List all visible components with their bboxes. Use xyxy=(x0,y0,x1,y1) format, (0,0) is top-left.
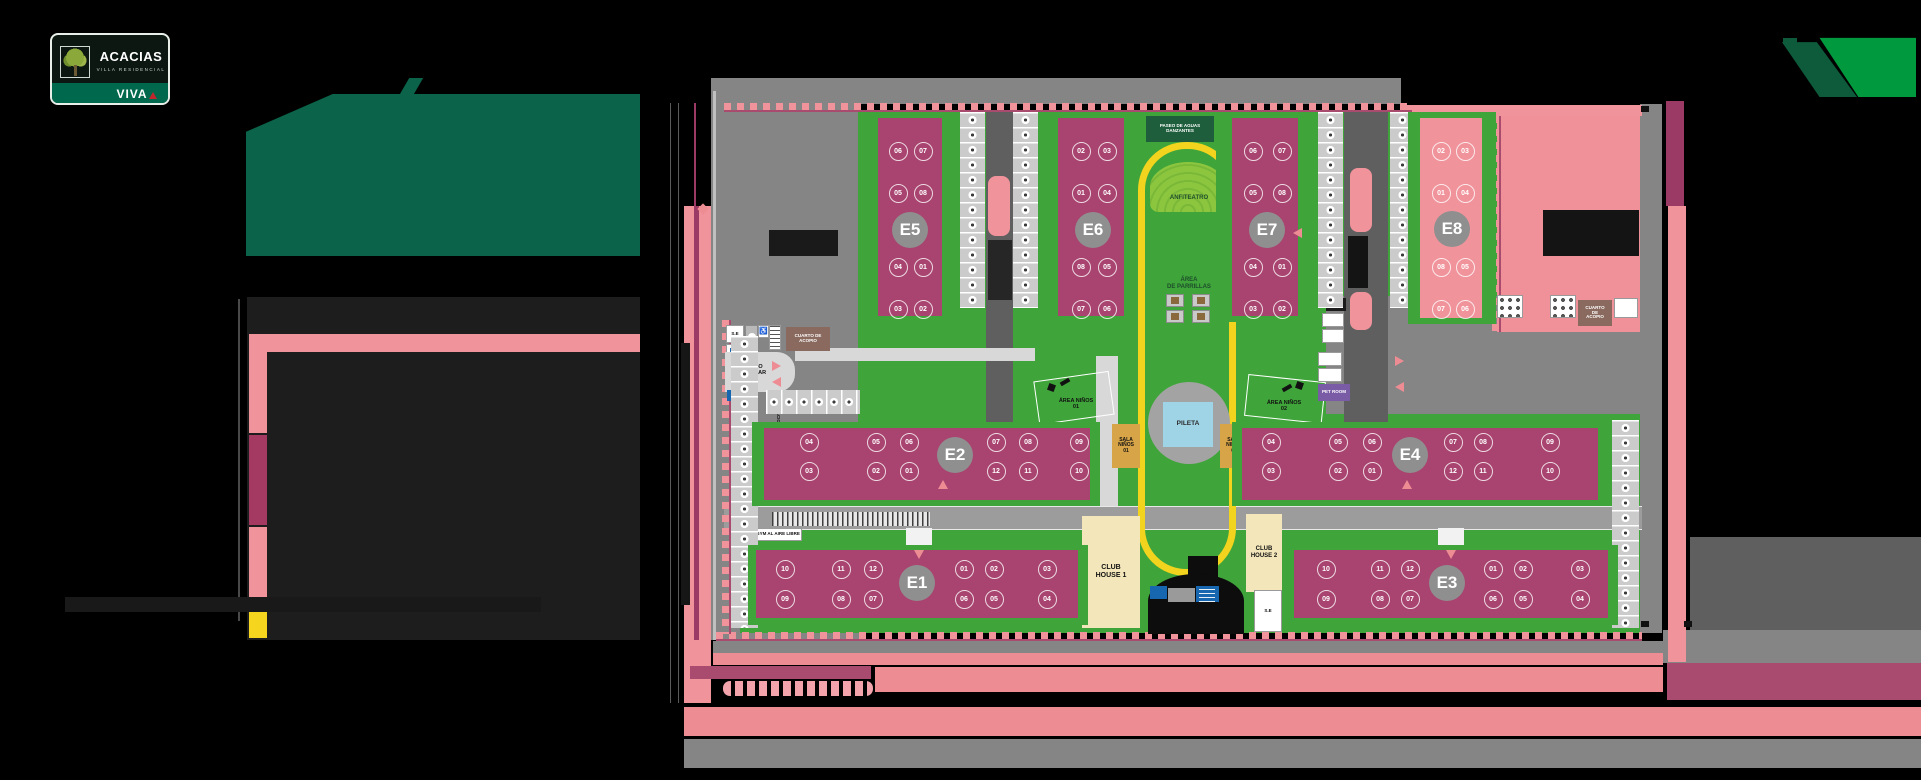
unit-circle-E7-02: 02 xyxy=(1273,300,1292,319)
unit-circle-E5-05: 05 xyxy=(889,184,908,203)
dashed-border-north xyxy=(724,103,1412,112)
unit-circle-E5-06: 06 xyxy=(889,142,908,161)
unit-circle-E8-03: 03 xyxy=(1456,142,1475,161)
cuarto-acopio-left: CUARTO DE ACOPIO xyxy=(786,327,830,351)
building-label-E1: E1 xyxy=(899,565,935,601)
sala-ninos-1: SALA NIÑOS 01 xyxy=(1112,424,1140,468)
building-label-E7: E7 xyxy=(1249,212,1285,248)
street-south-salmon-1 xyxy=(713,653,1663,665)
unit-circle-E4-10: 10 xyxy=(1541,462,1560,481)
utility-box-2 xyxy=(1322,329,1344,343)
direction-arrow-6 xyxy=(1402,480,1412,489)
utility-box-4 xyxy=(1318,368,1342,382)
building-label-E4: E4 xyxy=(1392,437,1428,473)
unit-circle-E4-12: 12 xyxy=(1444,462,1463,481)
club-house-2: CLUB HOUSE 2 xyxy=(1246,514,1282,592)
guide-line-1 xyxy=(670,103,671,703)
pet-room: PET ROOM xyxy=(1318,384,1350,401)
street-west-curb xyxy=(713,91,716,640)
street-name-block-west xyxy=(769,230,838,256)
unit-circle-E5-02: 02 xyxy=(914,300,933,319)
street-south-salmon-2 xyxy=(875,667,1663,692)
east-marker-3 xyxy=(1684,621,1692,627)
unit-circle-E4-04: 04 xyxy=(1262,433,1281,452)
utility-box-3 xyxy=(1318,352,1342,366)
unit-circle-E1-12: 12 xyxy=(864,560,883,579)
building-label-E6: E6 xyxy=(1075,212,1111,248)
unit-circle-E6-01: 01 xyxy=(1072,184,1091,203)
unit-circle-E1-05: 05 xyxy=(985,590,1004,609)
unit-circle-E2-09: 09 xyxy=(1070,433,1089,452)
unit-circle-E3-08: 08 xyxy=(1371,590,1390,609)
parking-strip-2 xyxy=(1013,112,1038,308)
unit-circle-E3-03: 03 xyxy=(1571,560,1590,579)
unit-circle-E8-08: 08 xyxy=(1432,258,1451,277)
playground-1-label: ÁREA NIÑOS 01 xyxy=(1044,396,1108,412)
amphitheater-fan xyxy=(1150,162,1226,212)
unit-circle-E4-08: 08 xyxy=(1474,433,1493,452)
unit-circle-E7-01: 01 xyxy=(1273,258,1292,277)
unit-circle-E1-03: 03 xyxy=(1038,560,1057,579)
unit-circle-E6-07: 07 xyxy=(1072,300,1091,319)
planter-3 xyxy=(1350,292,1372,330)
unit-circle-E2-06: 06 xyxy=(900,433,919,452)
direction-arrow-8 xyxy=(1395,382,1404,392)
unit-circle-E4-06: 06 xyxy=(1363,433,1382,452)
unit-circle-E4-01: 01 xyxy=(1363,462,1382,481)
unit-circle-E5-01: 01 xyxy=(914,258,933,277)
unit-circle-E7-07: 07 xyxy=(1273,142,1292,161)
unit-circle-E5-03: 03 xyxy=(889,300,908,319)
unit-circle-E1-01: 01 xyxy=(955,560,974,579)
guide-line-2 xyxy=(678,103,679,703)
street-south-magenta-east xyxy=(1667,663,1921,700)
unit-circle-E7-04: 04 xyxy=(1244,258,1263,277)
building-label-E3: E3 xyxy=(1429,565,1465,601)
gate-sign-2 xyxy=(1196,586,1219,602)
unit-circle-E3-11: 11 xyxy=(1371,560,1390,579)
se-box-bottom: S.E xyxy=(1254,590,1282,632)
boundary-line-top-left xyxy=(694,103,696,208)
planter-2 xyxy=(1350,168,1372,232)
direction-arrow-2 xyxy=(772,377,781,387)
unit-circle-E6-06: 06 xyxy=(1098,300,1117,319)
stairs-icon xyxy=(769,325,781,350)
parrillas-label: ÁREA DE PARRILLAS xyxy=(1160,276,1218,292)
unit-circle-E3-01: 01 xyxy=(1484,560,1503,579)
unit-circle-E8-02: 02 xyxy=(1432,142,1451,161)
unit-circle-E1-07: 07 xyxy=(864,590,883,609)
pergola-walkway xyxy=(772,512,930,526)
unit-circle-E8-07: 07 xyxy=(1432,300,1451,319)
utility-ne-3 xyxy=(1614,298,1638,318)
east-marker-1 xyxy=(1641,106,1649,112)
unit-circle-E3-07: 07 xyxy=(1401,590,1420,609)
utility-box-1 xyxy=(1322,313,1344,327)
grill-4 xyxy=(1192,310,1210,323)
unit-circle-E5-04: 04 xyxy=(889,258,908,277)
unit-circle-E6-08: 08 xyxy=(1072,258,1091,277)
unit-circle-E5-07: 07 xyxy=(914,142,933,161)
unit-circle-E8-05: 05 xyxy=(1456,258,1475,277)
unit-circle-E2-02: 02 xyxy=(867,462,886,481)
unit-circle-E4-11: 11 xyxy=(1474,462,1493,481)
unit-circle-E7-03: 03 xyxy=(1244,300,1263,319)
unit-circle-E6-05: 05 xyxy=(1098,258,1117,277)
unit-circle-E3-12: 12 xyxy=(1401,560,1420,579)
path-west-horizontal xyxy=(795,348,1035,361)
paseo-sign: PASEO DE AGUAS DANZANTES xyxy=(1146,116,1214,142)
utility-ne-2 xyxy=(1550,295,1576,318)
street-southeast xyxy=(1690,537,1921,630)
boundary-east-magenta xyxy=(1666,101,1684,206)
unit-circle-E2-08: 08 xyxy=(1019,433,1038,452)
avenue-gray-band xyxy=(684,739,1921,768)
unit-circle-E4-07: 07 xyxy=(1444,433,1463,452)
unit-circle-E6-02: 02 xyxy=(1072,142,1091,161)
direction-arrow-7 xyxy=(1395,356,1404,366)
parking-strip-3 xyxy=(1318,112,1343,308)
club-house-1: CLUB HOUSE 1 xyxy=(1082,516,1140,628)
unit-circle-E3-09: 09 xyxy=(1317,590,1336,609)
boundary-west-magenta xyxy=(694,206,699,640)
gate-booth xyxy=(1168,588,1195,602)
unit-circle-E2-07: 07 xyxy=(987,433,1006,452)
unit-circle-E4-02: 02 xyxy=(1329,462,1348,481)
direction-arrow-4 xyxy=(1446,550,1456,559)
direction-arrow-1 xyxy=(772,361,781,371)
building-label-E5: E5 xyxy=(892,212,928,248)
unit-circle-E3-02: 02 xyxy=(1514,560,1533,579)
unit-circle-E7-05: 05 xyxy=(1244,184,1263,203)
direction-arrow-3 xyxy=(914,550,924,559)
unit-circle-E6-03: 03 xyxy=(1098,142,1117,161)
east-marker-2 xyxy=(1641,621,1649,627)
direction-arrow-5 xyxy=(938,480,948,489)
unit-circle-E1-08: 08 xyxy=(832,590,851,609)
unit-circle-E7-06: 06 xyxy=(1244,142,1263,161)
street-name-pink-text xyxy=(723,681,873,696)
cuarto-acopio-right: CUARTO DE ACOPIO xyxy=(1578,300,1612,326)
building-label-E8: E8 xyxy=(1434,211,1470,247)
parking-strip-1 xyxy=(960,112,985,308)
unit-circle-E1-09: 09 xyxy=(776,590,795,609)
unit-circle-E3-04: 04 xyxy=(1571,590,1590,609)
grill-1 xyxy=(1166,294,1184,307)
unit-circle-E2-05: 05 xyxy=(867,433,886,452)
grill-3 xyxy=(1166,310,1184,323)
planter-2-label xyxy=(1348,236,1368,288)
unit-circle-E2-12: 12 xyxy=(987,462,1006,481)
playground-2-label: ÁREA NIÑOS 02 xyxy=(1252,398,1316,414)
amphitheater-label: ANFITEATRO xyxy=(1156,193,1222,203)
street-south-gray xyxy=(713,641,1663,653)
utility-ne-1 xyxy=(1497,295,1523,318)
unit-circle-E3-06: 06 xyxy=(1484,590,1503,609)
street-south-magenta-median xyxy=(690,666,871,679)
unit-circle-E1-10: 10 xyxy=(776,560,795,579)
unit-circle-E4-03: 03 xyxy=(1262,462,1281,481)
grill-2 xyxy=(1192,294,1210,307)
site-plan-page: ACACIAS VILLA RESIDENCIAL VIVA xyxy=(0,0,1921,780)
unit-circle-E2-03: 03 xyxy=(800,462,819,481)
unit-circle-E1-04: 04 xyxy=(1038,590,1057,609)
unit-circle-E1-02: 02 xyxy=(985,560,1004,579)
unit-circle-E2-11: 11 xyxy=(1019,462,1038,481)
unit-circle-E6-04: 04 xyxy=(1098,184,1117,203)
unit-circle-E8-04: 04 xyxy=(1456,184,1475,203)
boundary-west-label-block xyxy=(681,343,690,605)
unit-circle-E5-08: 08 xyxy=(914,184,933,203)
building-label-E2: E2 xyxy=(937,437,973,473)
pool-label: PILETA xyxy=(1158,419,1218,429)
unit-circle-E8-06: 06 xyxy=(1456,300,1475,319)
planter-1-label xyxy=(988,240,1012,300)
unit-circle-E3-10: 10 xyxy=(1317,560,1336,579)
unit-circle-E2-01: 01 xyxy=(900,462,919,481)
direction-arrow-9 xyxy=(1293,228,1302,238)
unit-circle-E4-09: 09 xyxy=(1541,433,1560,452)
unit-circle-E7-08: 08 xyxy=(1273,184,1292,203)
unit-circle-E8-01: 01 xyxy=(1432,184,1451,203)
street-southeast-2 xyxy=(1663,630,1921,663)
planter-1 xyxy=(988,176,1010,236)
avenue-salmon-band xyxy=(684,707,1921,736)
gate-sign-1 xyxy=(1150,586,1167,599)
unit-circle-E4-05: 05 xyxy=(1329,433,1348,452)
unit-circle-E2-04: 04 xyxy=(800,433,819,452)
unit-circle-E3-05: 05 xyxy=(1514,590,1533,609)
unit-circle-E1-06: 06 xyxy=(955,590,974,609)
accessible-parking-icon: ♿ xyxy=(758,325,769,338)
unit-circle-E1-11: 11 xyxy=(832,560,851,579)
parking-strip-7 xyxy=(766,390,860,414)
gym-label: GYM AL AIRE LIBRE xyxy=(754,528,802,541)
future-phase-label-block xyxy=(1543,210,1639,256)
boundary-east-pink xyxy=(1668,206,1686,662)
site-plan-map: PASEO DE AGUAS DANZANTES ANFITEATRO ÁREA… xyxy=(0,0,1921,780)
unit-circle-E2-10: 10 xyxy=(1070,462,1089,481)
main-gate-structure xyxy=(1148,574,1244,634)
